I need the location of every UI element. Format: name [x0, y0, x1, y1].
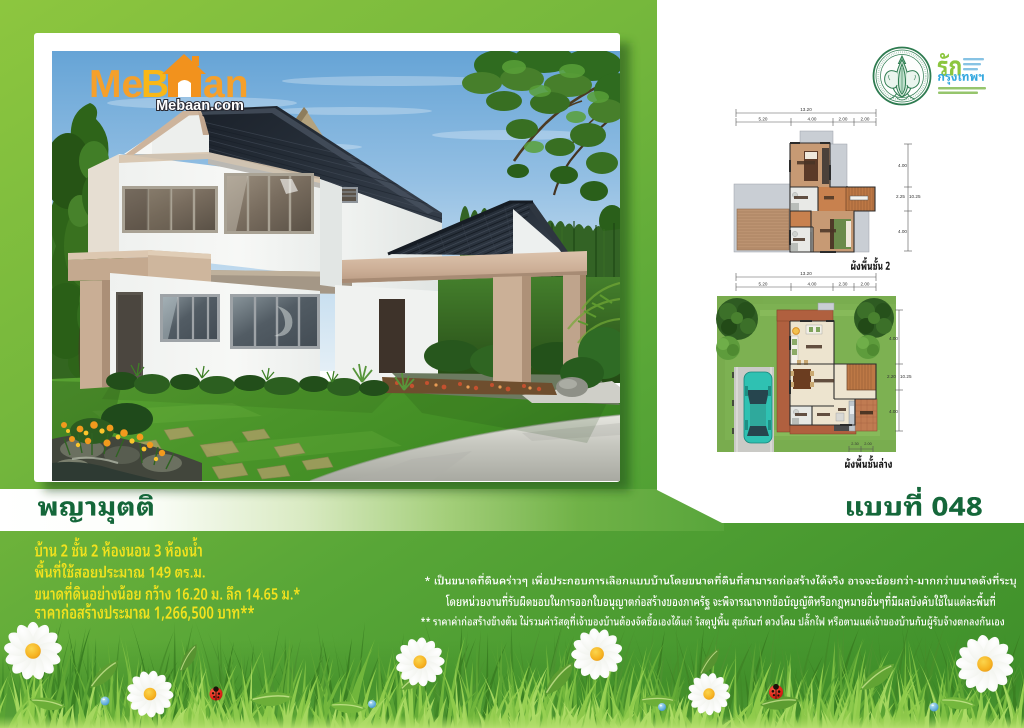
svg-text:4.00: 4.00: [889, 336, 898, 341]
svg-text:2.00: 2.00: [861, 117, 870, 122]
svg-text:5.20: 5.20: [759, 282, 768, 287]
svg-text:2.30: 2.30: [839, 282, 848, 287]
svg-text:10.25: 10.25: [900, 374, 912, 379]
svg-text:5.20: 5.20: [759, 117, 768, 122]
svg-text:4.00: 4.00: [898, 229, 907, 234]
svg-text:10.25: 10.25: [909, 194, 921, 199]
svg-text:4.00: 4.00: [808, 117, 817, 122]
svg-text:2.30: 2.30: [851, 442, 858, 446]
svg-text:2.00: 2.00: [861, 282, 870, 287]
svg-text:2.25: 2.25: [896, 194, 905, 199]
svg-text:4.00: 4.00: [898, 163, 907, 168]
svg-text:Mebaan.com: Mebaan.com: [156, 98, 244, 114]
svg-text:Me: Me: [89, 63, 143, 106]
svg-text:13.20: 13.20: [800, 271, 812, 276]
svg-text:2.00: 2.00: [839, 117, 848, 122]
svg-text:2.20: 2.20: [887, 374, 896, 379]
svg-text:2.00: 2.00: [864, 442, 871, 446]
svg-text:4.00: 4.00: [808, 282, 817, 287]
svg-text:13.20: 13.20: [800, 107, 812, 112]
svg-text:4.00: 4.00: [889, 409, 898, 414]
